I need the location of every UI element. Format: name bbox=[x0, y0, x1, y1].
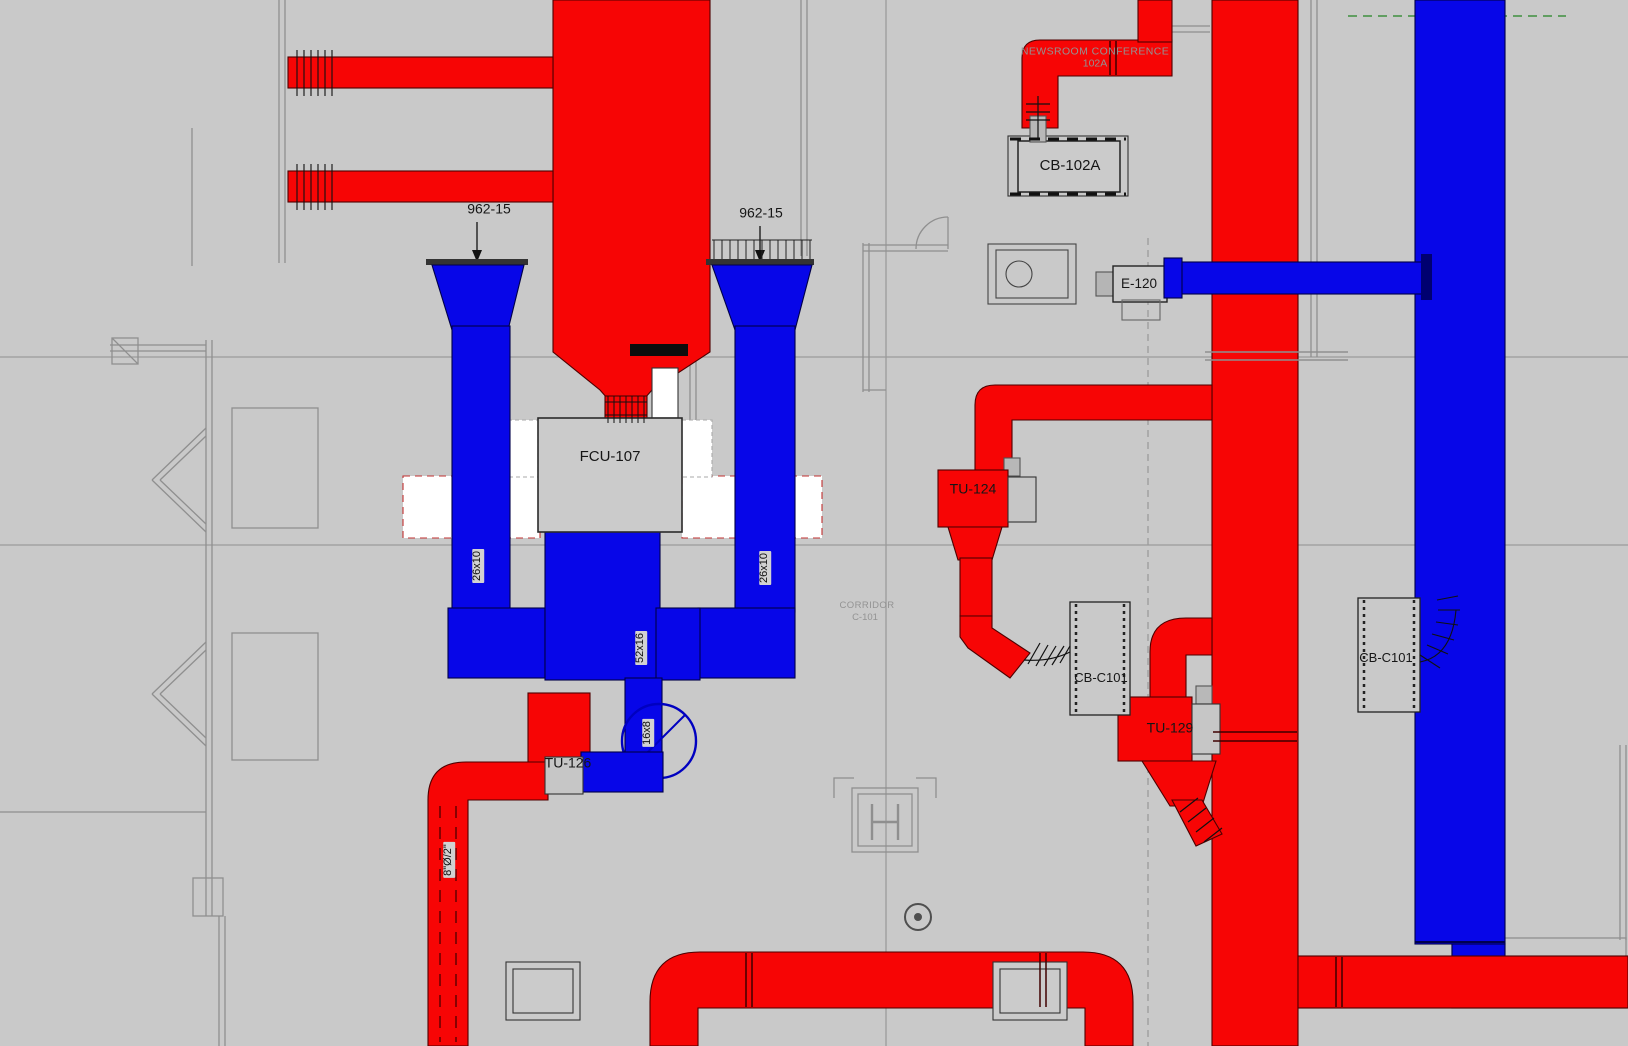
hvac-plan-canvas: NEWSROOM CONFERENCE 102A CORRIDOR C-101 … bbox=[0, 0, 1628, 1046]
tu129-flex-hatch bbox=[1180, 798, 1222, 842]
tag-cb102a: CB-102A bbox=[1040, 158, 1101, 174]
tag-e120: E-120 bbox=[1121, 277, 1157, 291]
wall-over-red-main bbox=[1205, 352, 1348, 360]
tag-fcu107: FCU-107 bbox=[580, 449, 641, 465]
duct-size-round-runout: 8"Ø/2" bbox=[443, 842, 455, 878]
tag-tu129: TU-129 bbox=[1147, 721, 1194, 736]
duct-size-right-riser: 26x10 bbox=[759, 551, 771, 585]
tag-tu126: TU-126 bbox=[545, 756, 592, 771]
cbc101-right-flex-fan bbox=[1420, 596, 1460, 668]
callout-962-15-left: 962-15 bbox=[467, 202, 511, 217]
room-label-corridor-name: CORRIDOR bbox=[840, 601, 895, 611]
tag-cbc101-left: CB-C101 bbox=[1074, 671, 1127, 685]
right-funnel-comb-hatch bbox=[712, 240, 812, 259]
branch-coil-hatch bbox=[297, 50, 332, 210]
duct-size-branch: 16x8 bbox=[642, 719, 654, 747]
duct-joints bbox=[746, 41, 1342, 1007]
tu124-flex-hatch bbox=[1024, 643, 1070, 666]
callout-962-15-right: 962-15 bbox=[739, 206, 783, 221]
room-label-newsroom-name: NEWSROOM CONFERENCE bbox=[1021, 46, 1169, 57]
room-label-corridor-number: C-101 bbox=[852, 613, 878, 623]
overlay-linework-layer bbox=[0, 0, 1628, 1046]
duct-size-left-riser: 26x10 bbox=[472, 549, 484, 583]
tag-cbc101-right: CB-C101 bbox=[1359, 651, 1412, 665]
cb102a-flex-symbol bbox=[1026, 96, 1050, 138]
duct-size-main-riser: 52x16 bbox=[635, 631, 647, 665]
tag-tu124: TU-124 bbox=[950, 482, 997, 497]
fcu-flex-hatch bbox=[605, 396, 647, 423]
room-label-newsroom-number: 102A bbox=[1083, 58, 1108, 69]
